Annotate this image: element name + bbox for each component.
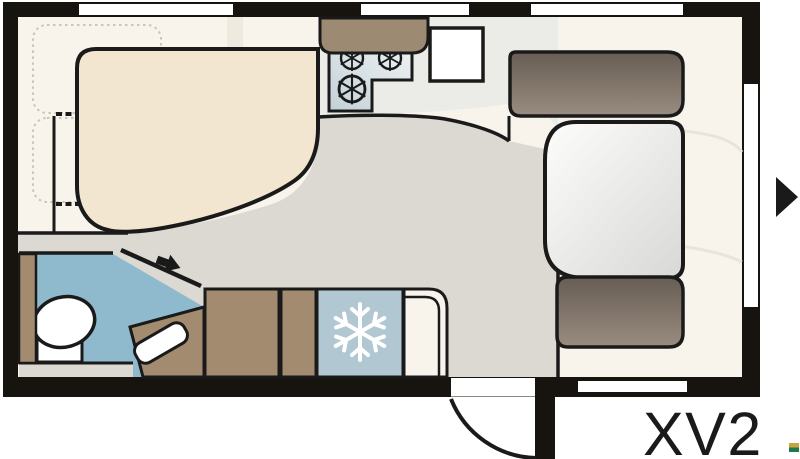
overhead-locker-band <box>227 17 243 49</box>
sink <box>430 28 483 81</box>
brand-logo-mark <box>789 443 799 452</box>
bathroom-cabinet <box>19 254 36 363</box>
floorplan-svg: XV2 <box>0 0 800 459</box>
window-dinette-top <box>531 4 683 15</box>
dinette-bench-top <box>510 52 683 116</box>
kitchen-cabinet-2 <box>281 289 316 377</box>
dinette-table <box>545 122 683 278</box>
entry-door-leaf <box>535 377 555 459</box>
bathroom-floor-step <box>19 363 133 377</box>
entry-door-opening <box>451 378 535 397</box>
kitchen-cabinet-1 <box>205 289 279 377</box>
model-label: XV2 <box>643 400 763 459</box>
window-right-side <box>744 84 758 307</box>
logo-green-bar <box>789 448 799 453</box>
entry-partition <box>404 289 447 377</box>
window-dinette-bottom <box>578 381 687 392</box>
counter-flap <box>320 18 428 53</box>
dinette-bench-bottom <box>557 277 683 347</box>
window-front-left <box>79 4 233 15</box>
logo-gold-bar <box>789 443 799 448</box>
window-kitchen <box>361 4 469 15</box>
floorplan: XV2 <box>0 0 800 459</box>
